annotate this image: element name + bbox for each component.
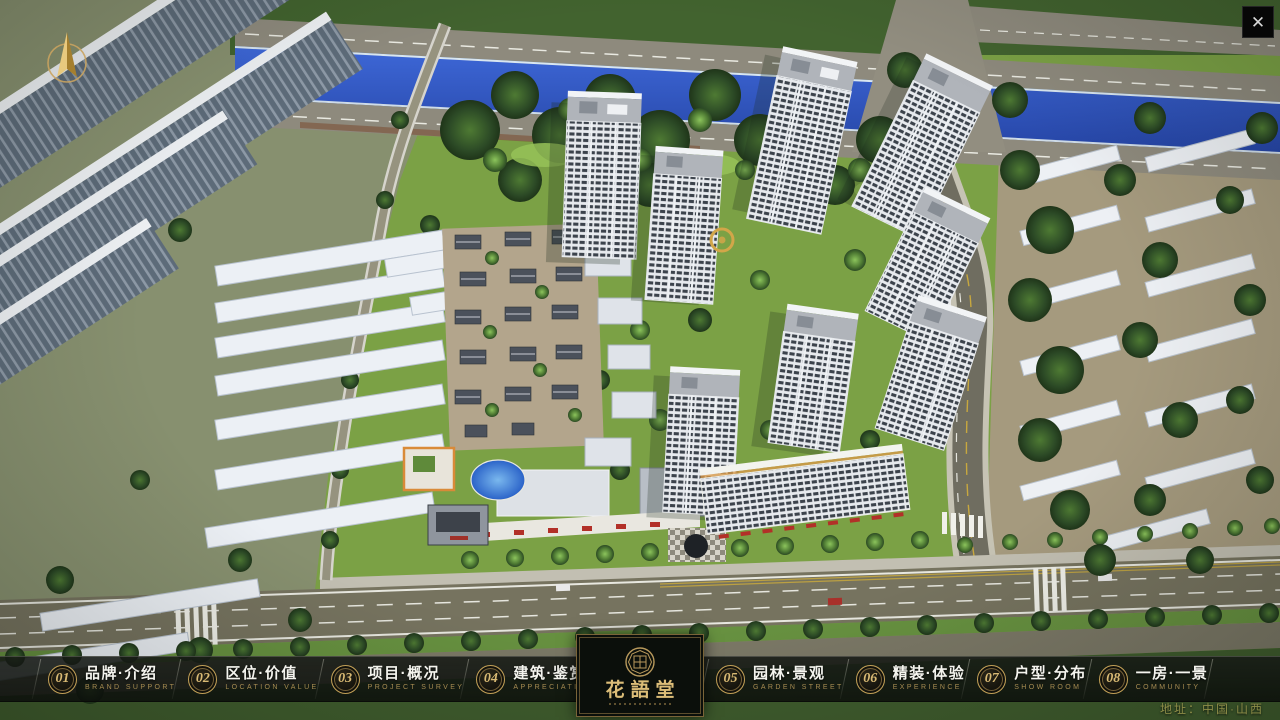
presentation-window: .t1{fill:url(#treeG)} .t2{fill:url(#tree… [0,0,1280,720]
close-button[interactable]: ✕ [1242,6,1274,38]
logo-subtitle-rule [609,703,671,705]
nav-item-project[interactable]: 03 项目·概况PROJECT SURVEY [319,657,465,701]
nav-group-left: 01 品牌·介绍BRAND SUPPORT 02 区位·价值LOCATION V… [0,657,576,701]
nav-item-location[interactable]: 02 区位·价值LOCATION VALUE [176,657,318,701]
nav-label-zh: 精装·体验 [893,666,966,683]
project-address: 地址：中国·山西 [1160,700,1264,717]
nav-label-zh: 户型·分布 [1014,666,1087,683]
nav-number-badge: 01 [48,665,77,694]
seal-icon [624,646,656,678]
nav-label-zh: 项目·概况 [368,666,465,683]
nav-label-zh: 一房·一景 [1136,666,1209,683]
nav-label-en: PROJECT SURVEY [368,684,465,692]
nav-item-brand[interactable]: 01 品牌·介绍BRAND SUPPORT [36,657,176,701]
nav-label-zh: 品牌·介绍 [85,666,176,683]
nav-label-en: COMMUNITY [1136,684,1209,692]
nav-item-architecture[interactable]: 04 建筑·鉴赏APPRECIATION [464,657,593,701]
nav-label-en: EXPERIENCE [893,684,966,692]
project-logo-title: 花語堂 [599,681,680,700]
nav-label-en: LOCATION VALUE [225,684,318,692]
nav-number-badge: 07 [977,665,1006,694]
nav-label-zh: 区位·价值 [225,666,318,683]
nav-label-zh: 园林·景观 [753,666,844,683]
nav-number-badge: 08 [1099,665,1128,694]
project-logo-button[interactable]: 花語堂 [576,634,704,717]
nav-number-badge: 06 [856,665,885,694]
nav-number-badge: 02 [188,665,217,694]
nav-item-garden[interactable]: 05 园林·景观GARDEN STREET [704,657,844,701]
compass-icon [38,24,96,94]
masterplan-render: .t1{fill:url(#treeG)} .t2{fill:url(#tree… [0,0,1280,720]
nav-number-badge: 05 [716,665,745,694]
nav-group-right: 05 园林·景观GARDEN STREET 06 精装·体验EXPERIENCE… [704,657,1280,701]
close-icon: ✕ [1251,14,1265,31]
nav-item-interior[interactable]: 06 精装·体验EXPERIENCE [844,657,966,701]
nav-number-badge: 04 [476,665,505,694]
nav-item-views[interactable]: 08 一房·一景COMMUNITY [1087,657,1209,701]
nav-label-en: BRAND SUPPORT [85,684,176,692]
nav-item-floorplan[interactable]: 07 户型·分布SHOW ROOM [965,657,1087,701]
nav-label-en: SHOW ROOM [1014,684,1087,692]
nav-label-en: GARDEN STREET [753,684,844,692]
nav-tail-segment [1208,657,1280,701]
nav-number-badge: 03 [331,665,360,694]
